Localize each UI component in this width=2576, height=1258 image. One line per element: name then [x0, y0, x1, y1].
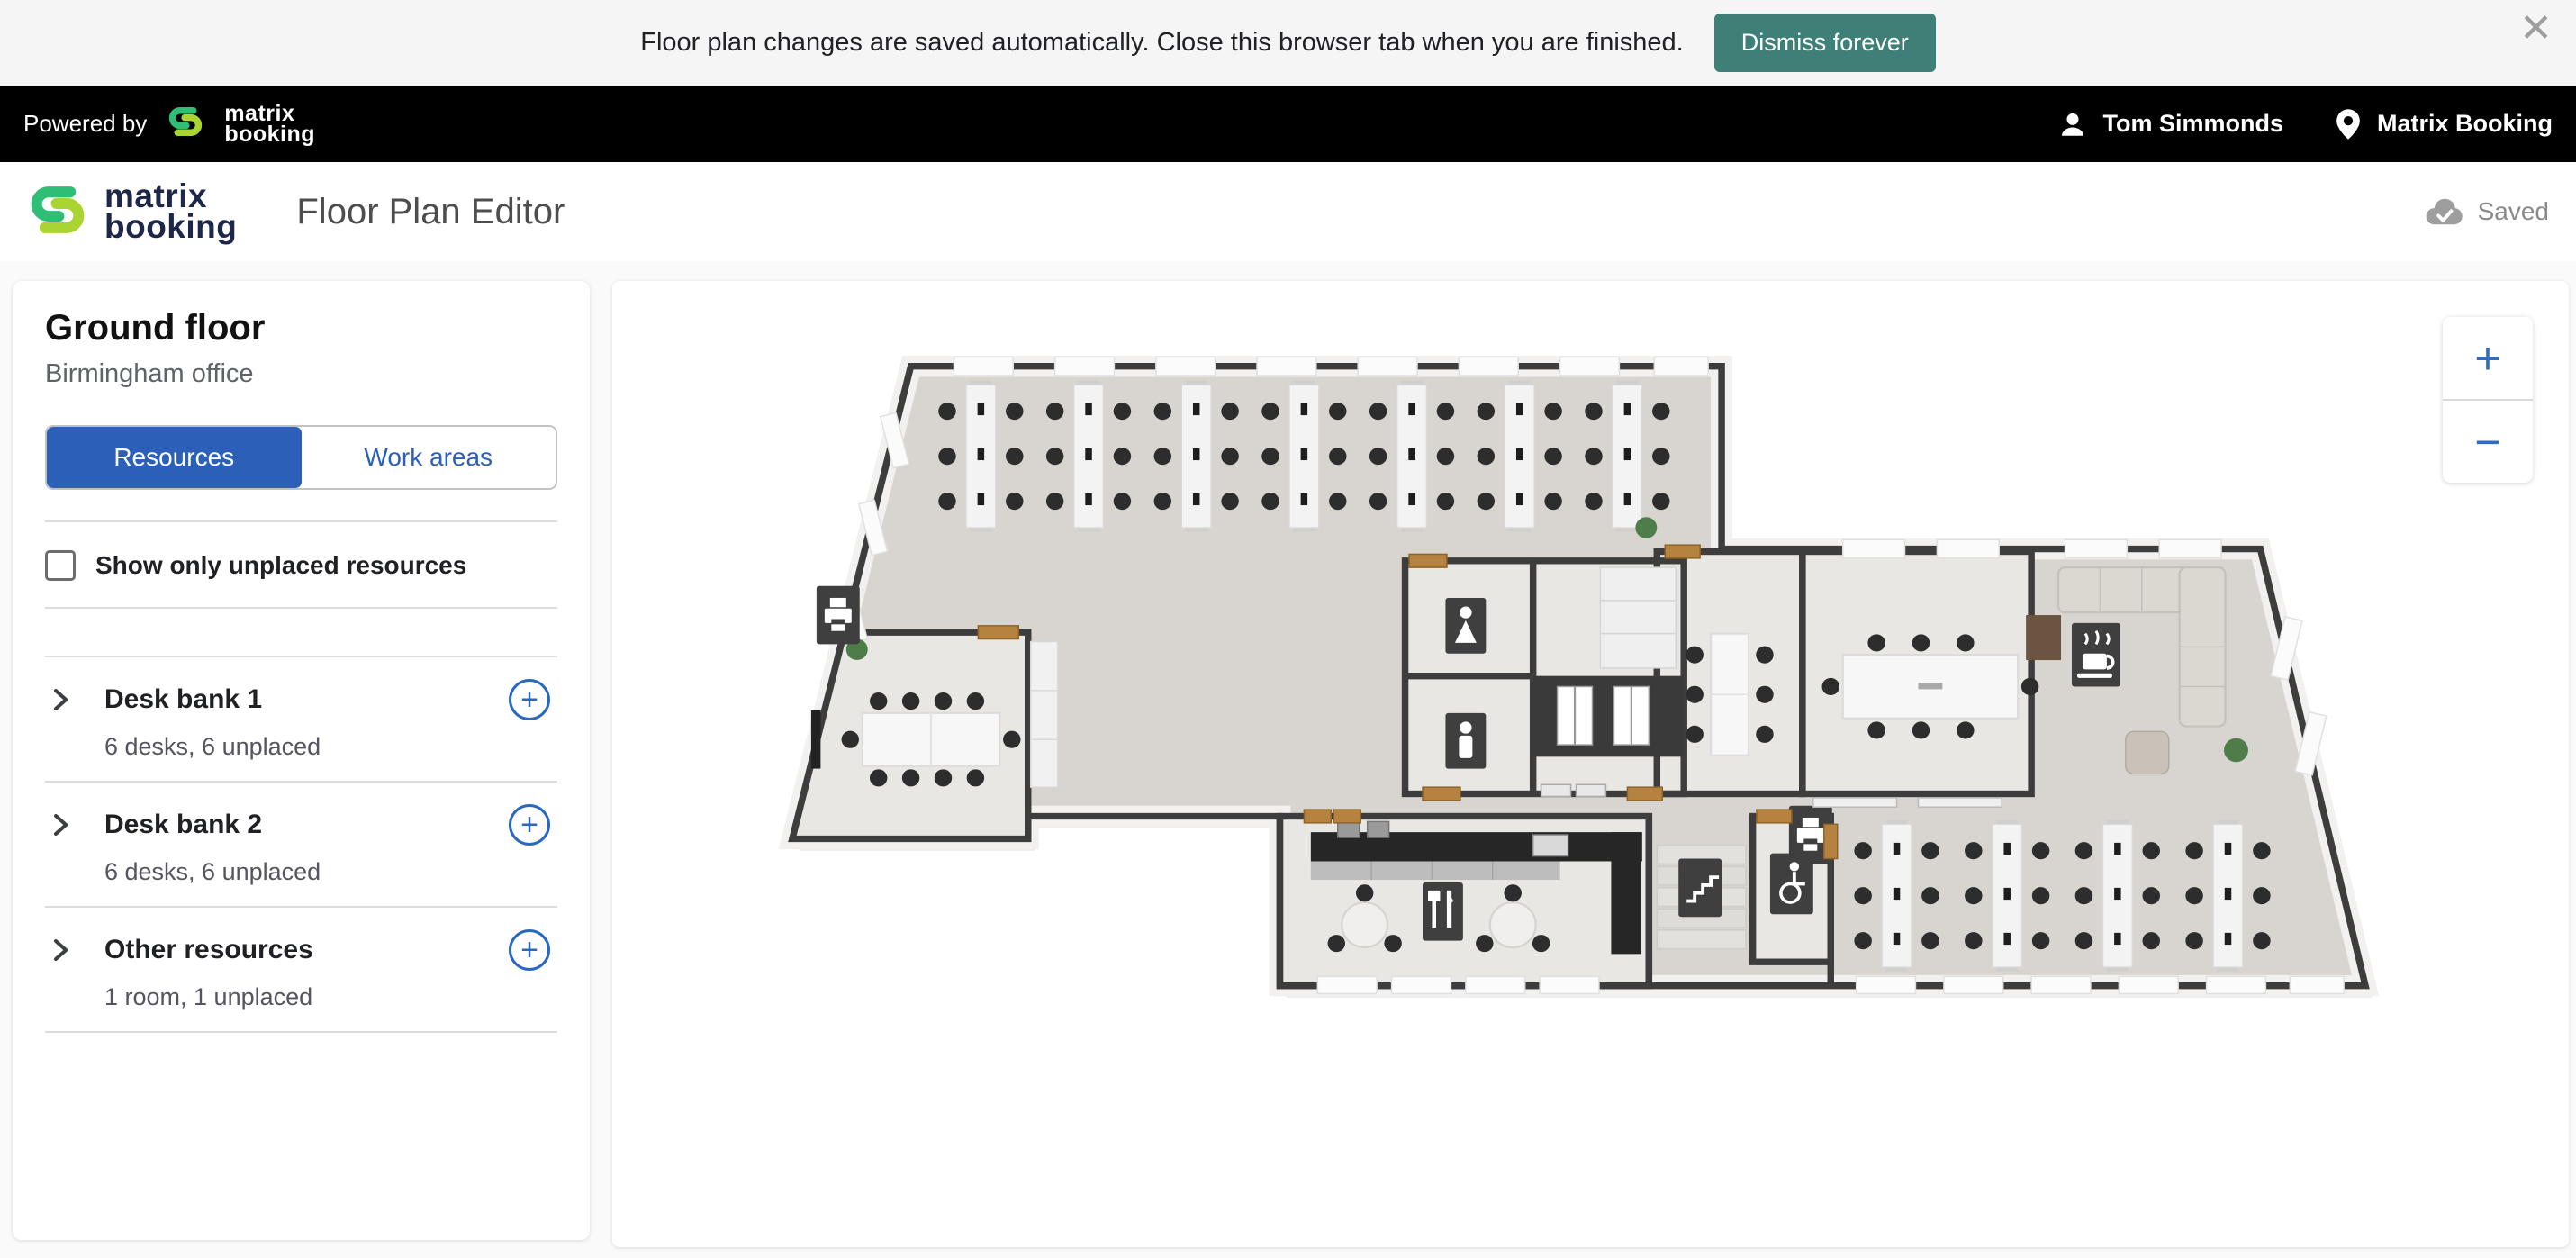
glass-door: [1918, 798, 2002, 807]
coffee-sign: [2072, 623, 2120, 687]
floor-plan-canvas[interactable]: + −: [612, 281, 2569, 1247]
door: [1423, 787, 1460, 801]
resource-group-details: 6 desks, 6 unplaced: [104, 733, 557, 761]
powered-by-bar: Powered by matrix booking Tom Simmonds: [0, 86, 2576, 162]
user-menu[interactable]: Tom Simmonds: [2057, 109, 2283, 140]
unplaced-filter-label: Show only unplaced resources: [95, 551, 466, 580]
door: [1304, 810, 1331, 823]
resource-group-name: Desk bank 1: [104, 684, 262, 715]
zoom-controls: + −: [2443, 317, 2533, 483]
printer-sign: [817, 586, 860, 645]
location-pin-icon: [2334, 108, 2363, 140]
side-table: [2026, 615, 2061, 660]
location-name: Birmingham office: [45, 359, 557, 389]
door: [1665, 545, 1700, 558]
user-icon: [2057, 109, 2088, 140]
door: [978, 626, 1018, 639]
resource-group-name: Desk bank 2: [104, 810, 262, 840]
armchair: [2126, 731, 2169, 774]
floor-plan[interactable]: [779, 353, 2395, 1015]
close-icon[interactable]: ✕: [2519, 9, 2553, 49]
sink: [1533, 835, 1568, 856]
page-title: Floor Plan Editor: [296, 192, 565, 232]
unplaced-filter-checkbox[interactable]: [45, 550, 76, 581]
brand-wordmark: matrix booking: [224, 104, 315, 145]
accessible-wc-sign: [1770, 854, 1813, 915]
tab-resources[interactable]: Resources: [47, 427, 302, 488]
add-resource-button[interactable]: +: [509, 804, 550, 846]
banner-message: Floor plan changes are saved automatical…: [640, 28, 1683, 58]
divider: [45, 1031, 557, 1033]
resource-group-name: Other resources: [104, 935, 313, 965]
resource-group-details: 1 room, 1 unplaced: [104, 983, 557, 1011]
sidebar: Ground floor Birmingham office Resources…: [13, 281, 590, 1240]
door: [1824, 824, 1838, 858]
chevron-right-icon[interactable]: [47, 686, 74, 713]
brand-wordmark: matrix booking: [104, 181, 237, 242]
dismiss-forever-button[interactable]: Dismiss forever: [1714, 14, 1936, 72]
user-name: Tom Simmonds: [2102, 110, 2283, 138]
chevron-right-icon[interactable]: [47, 937, 74, 964]
brand-line2: booking: [224, 124, 315, 145]
matrix-booking-logo-icon: [167, 103, 204, 145]
plant: [2224, 738, 2248, 762]
chevron-right-icon[interactable]: [47, 811, 74, 838]
zoom-out-button[interactable]: −: [2443, 401, 2533, 483]
glass-door: [1813, 798, 1897, 807]
location-menu[interactable]: Matrix Booking: [2334, 108, 2553, 140]
tv-screen: [811, 710, 820, 769]
zoom-in-button[interactable]: +: [2443, 317, 2533, 399]
door: [1627, 787, 1662, 801]
notification-banner: Floor plan changes are saved automatical…: [0, 0, 2576, 86]
resource-group-desk-bank-2[interactable]: Desk bank 2 + 6 desks, 6 unplaced: [45, 783, 557, 906]
unplaced-filter-row: Show only unplaced resources: [45, 546, 557, 585]
cloud-check-icon: [2424, 197, 2463, 226]
main-area: Ground floor Birmingham office Resources…: [0, 261, 2576, 1258]
add-resource-button[interactable]: +: [509, 679, 550, 720]
view-toggle: Resources Work areas: [45, 425, 557, 490]
resource-group-desk-bank-1[interactable]: Desk bank 1 + 6 desks, 6 unplaced: [45, 657, 557, 781]
matrix-booking-logo-icon: [27, 179, 88, 245]
add-resource-button[interactable]: +: [509, 929, 550, 971]
stairs: [1657, 846, 1746, 949]
powered-by-label: Powered by: [23, 110, 147, 138]
plant: [1635, 517, 1657, 538]
door: [1757, 810, 1792, 823]
saved-label: Saved: [2478, 197, 2549, 226]
org-name: Matrix Booking: [2377, 110, 2553, 138]
resource-group-details: 6 desks, 6 unplaced: [104, 858, 557, 886]
resource-group-other-resources[interactable]: Other resources + 1 room, 1 unplaced: [45, 908, 557, 1031]
floor-name: Ground floor: [45, 308, 557, 348]
divider: [45, 520, 557, 522]
door: [1409, 554, 1447, 567]
stairs-sign: [1678, 859, 1722, 918]
brand-line2: booking: [104, 212, 237, 242]
divider: [45, 607, 557, 609]
tab-work-areas[interactable]: Work areas: [302, 427, 556, 488]
app-header: matrix booking Floor Plan Editor Saved: [0, 162, 2576, 261]
door: [1333, 810, 1360, 823]
save-status: Saved: [2424, 197, 2549, 226]
brand-line1: matrix: [104, 181, 237, 212]
cutlery-sign: [1423, 882, 1463, 941]
